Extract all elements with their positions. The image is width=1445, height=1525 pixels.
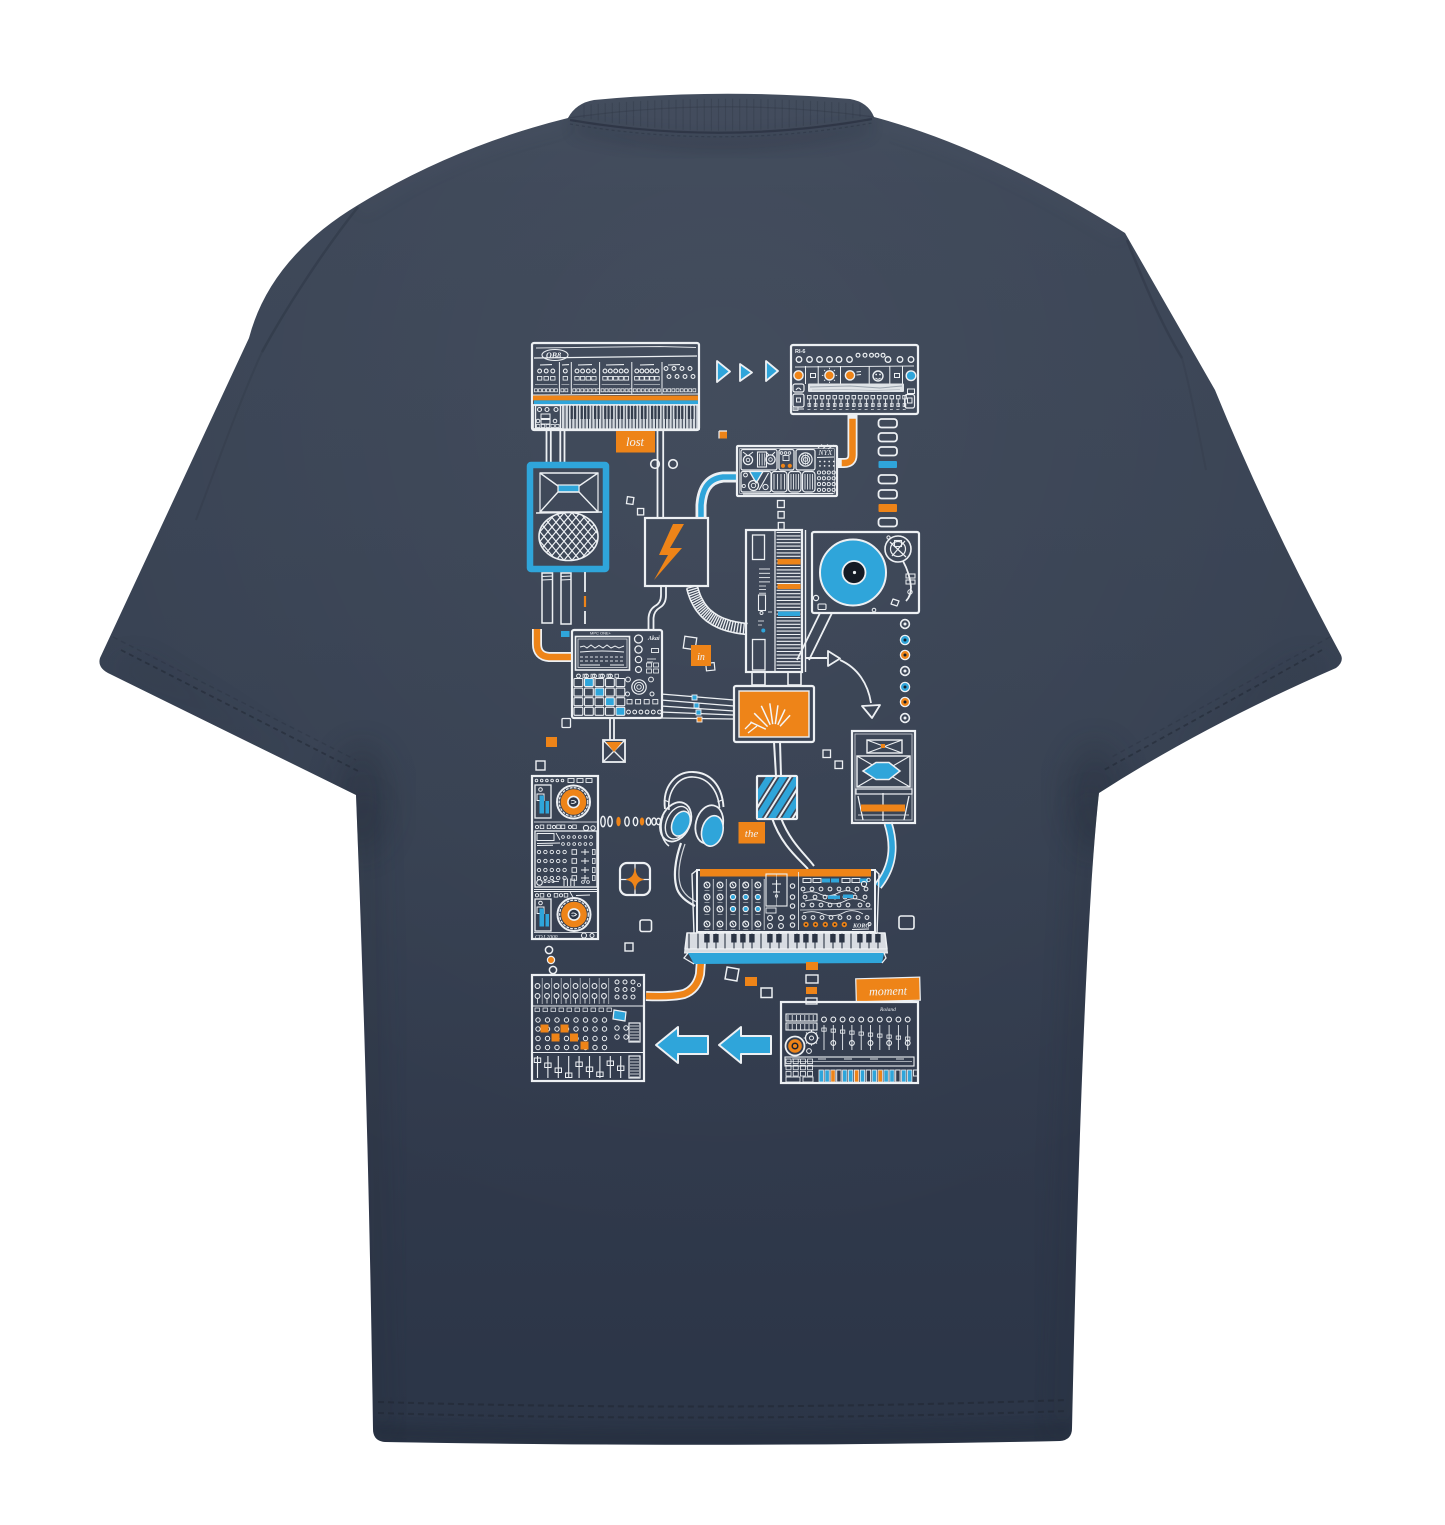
- svg-text:lost: lost: [626, 435, 645, 449]
- svg-text:moment: moment: [869, 983, 908, 998]
- svg-text:in: in: [697, 652, 705, 663]
- svg-text:MPC ONE+: MPC ONE+: [590, 631, 612, 636]
- svg-text:Roland: Roland: [879, 1007, 896, 1013]
- svg-text:NYX: NYX: [818, 448, 833, 457]
- svg-text:RI-6: RI-6: [795, 349, 805, 355]
- svg-text:the: the: [745, 828, 759, 840]
- svg-text:OB8: OB8: [546, 351, 561, 360]
- svg-text:Akai: Akai: [647, 636, 660, 642]
- svg-text:CDJ 2000: CDJ 2000: [535, 935, 558, 941]
